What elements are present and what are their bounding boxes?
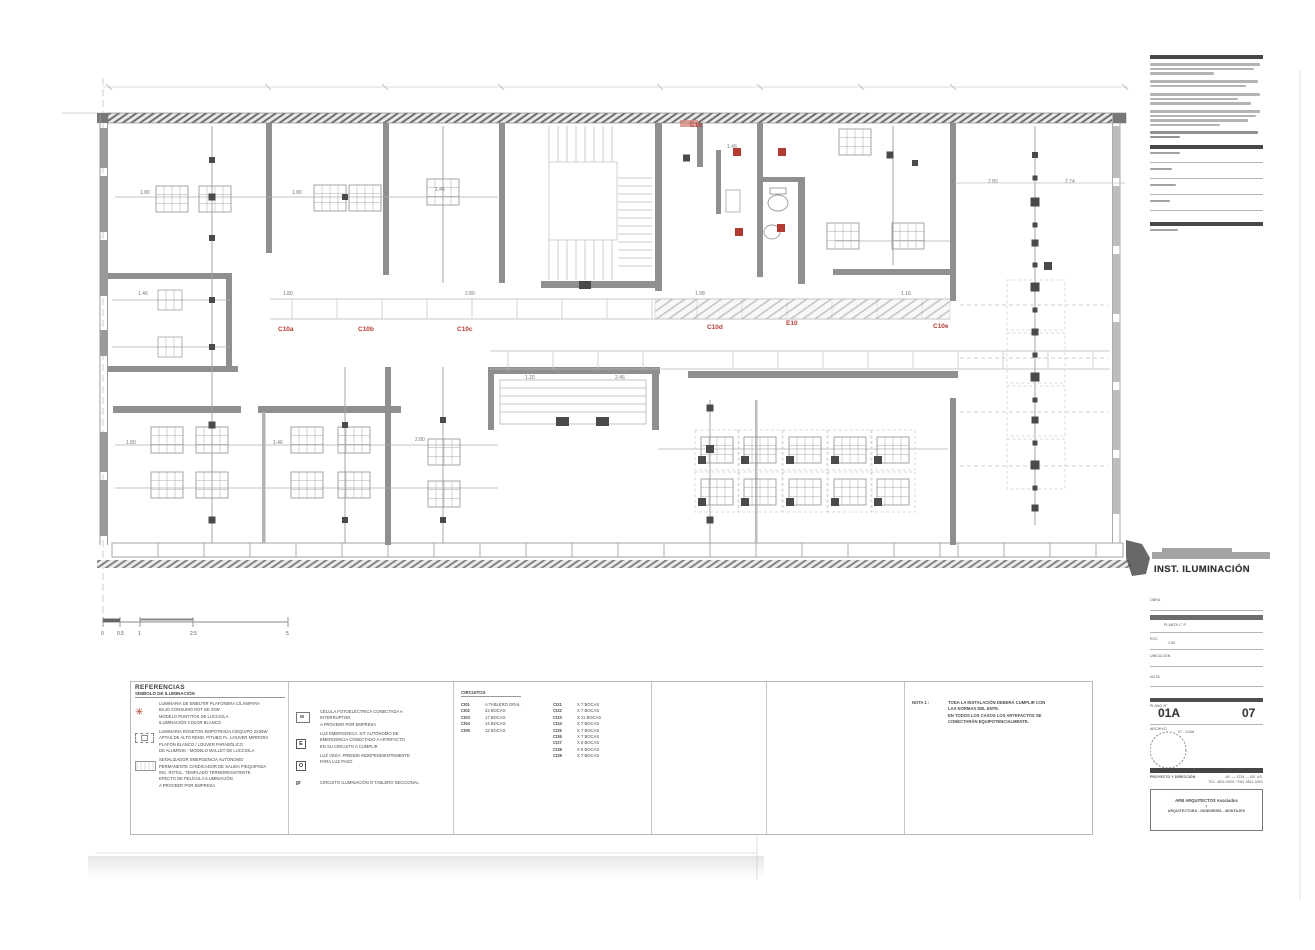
dim-label: 2.80 [988,179,998,185]
nota-label: NOTA 1 : [912,700,948,725]
legend-header: REFERENCIAS [135,684,285,691]
circuit-row: CI0512 BOCAS [461,728,553,734]
scale-label: 1 [138,631,141,637]
sheet-number: 07 [1242,706,1255,720]
night-light-icon: O [296,753,320,772]
dim-label: 2.80 [465,291,475,297]
legend-separator [453,682,454,834]
legend-col-devices: CÉLULA FOTOELÉCTRICA CONECTADA A INTERRU… [296,706,448,788]
dim-label: 1.80 [283,291,293,297]
dim-label: 1.46 [435,187,445,193]
scale-label: 0.5 [117,631,124,637]
circuits-table-right: CI21X 7 BOCAS CI22X 7 BOCAS CI23X 11 BOC… [553,702,643,760]
legend-line: EN SU CIRCUITO A CUMPLIR [320,744,448,750]
circuit-row: CI29X 7 BOCAS [553,753,643,759]
field-label: UBICACIÓN [1150,654,1170,659]
interior-walls [108,123,958,545]
circuit-tag: C10d [707,324,723,331]
field-label: NOTA [1150,675,1160,680]
legend-col-circuits: CIRCUITOS CI01A TABLERO GRAL CI0222 BOCA… [461,690,647,760]
notes-panel [1150,50,1270,550]
scale-label: 2.5 [190,631,197,637]
legend-item: SEÑALIZADOR EMERGENCIA AUTÓNOMO PERMANEN… [135,757,285,788]
section-divider [1150,145,1263,149]
dim-label: 2.46 [615,375,625,381]
circuit-tag: C10e [933,323,949,330]
sheet-number-divider [1150,698,1263,702]
corridor-bands [112,197,1110,488]
firm-box: ARB ARQUITECTOS Asociados y ARQUITECTURA… [1150,789,1263,831]
junction-boxes [209,152,1053,524]
dim-label: 1.16 [901,291,911,297]
circuit-id-icon: IP [296,780,320,788]
scale-label: 5 [286,631,289,637]
dim-label: 1.80 [140,190,150,196]
nota-line: CONECTARÁN EQUIPOTENCIALMENTE. [948,719,1086,725]
firm-bar-label: PROYECTO Y DIRECCIÓN [1150,775,1195,780]
circuits-header: CIRCUITOS [461,690,521,697]
legend-box: REFERENCIAS SÍMBOLO DE ILUMINACIÓN ✳ LUM… [130,681,1093,835]
firm-disciplines: ARQUITECTURA - INGENIERÍA - MONTAJES [1151,809,1262,814]
dim-label: 1.80 [126,440,136,446]
scale-label: 0 [101,631,104,637]
dim-label: 1.20 [525,375,535,381]
circuit-tag: C10 [690,122,702,129]
dim-label: 1.46 [138,291,148,297]
exit-sign-icon [135,757,159,788]
dim-label: 1.46 [727,144,737,150]
title-block: OBRA PLANTA 1° P. ESC. 1:50 UBICACIÓN NO… [1150,598,1263,838]
emergency-kit-icon: E [296,731,320,750]
legend-line: APTAS DE ALTO REND. P/TUBO FL. LOUVER MI… [159,735,285,741]
circuit-tag: E10 [786,320,798,327]
sheet-code: 01A [1158,706,1180,720]
staircase [549,126,652,280]
legend-line: ILUMINACIÓN COLOR BLANCO [159,720,285,726]
stamp-circle [1150,732,1186,768]
field-label: ESC. [1150,637,1159,642]
legend-line: A PROVEER POR EMPRESA [159,783,285,789]
field-value: 1:50 [1168,641,1175,646]
dim-label: 2.74 [1065,179,1075,185]
legend-separator [651,682,652,834]
field-label: OBRA [1150,598,1160,603]
drawing-sheet: C10 C10a C10b C10c C10d E10 C10e 1.80 1.… [0,0,1315,950]
dim-label: 1.46 [273,440,283,446]
circuit-tag: C10a [278,326,294,333]
dim-label: 1.80 [292,190,302,196]
legend-col-nota: NOTA 1 : TODA LA INSTALACIÓN DEBERÁ CUMP… [912,700,1086,725]
scan-shadow [88,856,764,878]
legend-item: ✳ LUMINARIA DE EMBUTIR PLAFONERA C/LÁMPA… [135,701,285,726]
legend-separator [904,682,905,834]
legend-line: A PROVEER POR EMPRESA [320,722,448,728]
troffer-icon [135,729,159,754]
section-divider [1150,222,1263,226]
datum-lines [62,78,1128,620]
elevator-shaft [500,380,646,424]
scale-bar: 0 0.5 1 2.5 5 [101,617,289,637]
legend-item: O LUZ VIGÍA. PRENDE INDEPENDIENTEMENTE P… [296,753,448,772]
legend-separator [288,682,289,834]
circuit-tag: C10c [457,326,473,333]
legend-line: PARA LUZ PASO [320,759,448,765]
dim-label: 2.80 [415,437,425,443]
legend-line: DE ALUMINIO - MODELO MALLET DE LUCCIOLA [159,748,285,754]
legend-col-symbols: REFERENCIAS SÍMBOLO DE ILUMINACIÓN ✳ LUM… [135,684,285,789]
dim-label: 1.98 [695,291,705,297]
legend-item: CÉLULA FOTOELÉCTRICA CONECTADA A INTERRU… [296,709,448,728]
legend-item: IP CIRCUITO ILUMINACIÓN O TABLERO SECCIO… [296,780,448,788]
legend-item: E LUZ EMERGENCIA. KIT AUTÓNOMO DE EMERGE… [296,731,448,750]
sheet-title: INST. ILUMINACIÓN [1154,564,1270,575]
notes-divider [1150,55,1263,59]
field-value: PLANTA 1° P. [1164,623,1187,628]
compact-lamp-icon: ✳ [135,701,159,726]
firm-divider [1150,768,1263,773]
firm-phone: TEL. 4811-0000 / FAX 4811-0001 [1208,780,1263,785]
legend-separator [766,682,767,834]
photocell-icon [296,709,320,728]
legend-item: LUMINARIA ROSETÓN EMPOTRADA C/EQUIPO 2X3… [135,729,285,754]
circuit-tag: C10b [358,326,374,333]
firm-address: AV. — 1234 — BS. AS. [1225,775,1263,780]
circuits-table-left: CI01A TABLERO GRAL CI0222 BOCAS CI0317 B… [461,702,553,760]
legend-subheader: SÍMBOLO DE ILUMINACIÓN [135,691,285,698]
legend-line: CIRCUITO ILUMINACIÓN O TABLERO SECCIONAL [320,780,448,786]
field-header-bar [1150,615,1263,620]
